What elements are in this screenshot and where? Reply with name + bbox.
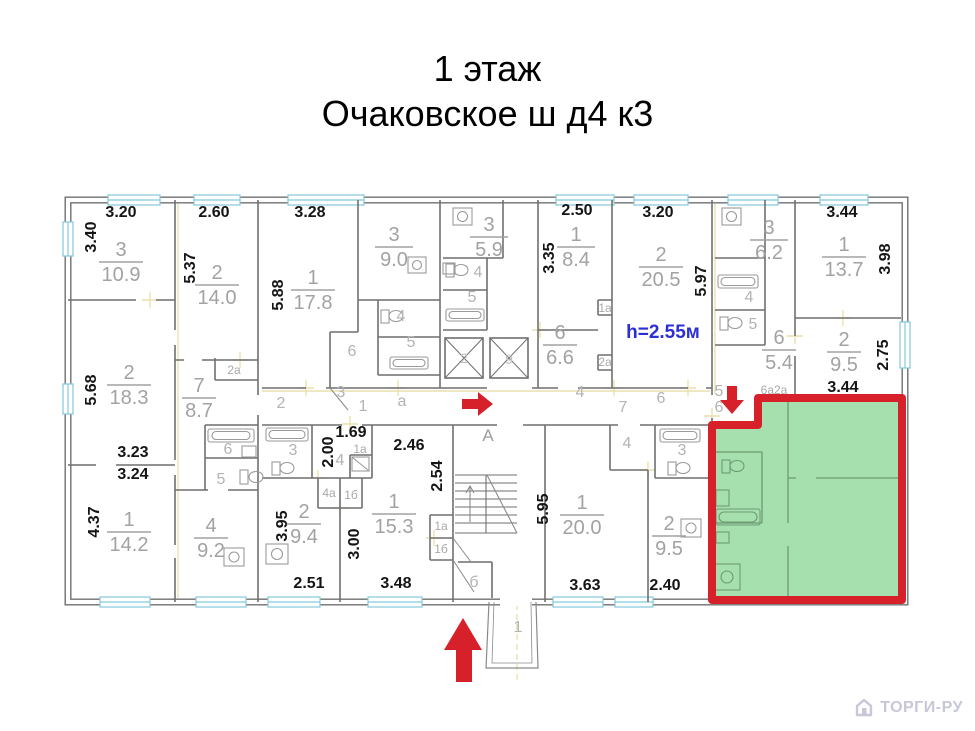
room-area: 20.5: [642, 269, 681, 291]
dim-label: 3.48: [380, 575, 411, 592]
room-label: 114.2: [107, 509, 151, 556]
sub-label: 4: [745, 289, 754, 306]
room-number: 1: [570, 224, 581, 246]
elevator-label: 9: [505, 351, 513, 367]
dim-label: 2.54: [429, 460, 446, 491]
dim-label: 2.40: [649, 577, 680, 594]
toilet: [446, 264, 468, 277]
room-label: 39.0: [375, 224, 413, 271]
sub-label: 1б: [434, 542, 448, 556]
room-label: 78.7: [182, 375, 216, 422]
room-area: 14.2: [110, 534, 149, 556]
corridor-label: 7: [619, 399, 628, 416]
dim-label: 5.88: [270, 279, 287, 310]
room-label: 65.4: [762, 327, 796, 374]
sub-label: 5: [715, 383, 724, 400]
dim-label: 1.69: [335, 424, 366, 441]
bathtub: [446, 309, 484, 321]
sub-label: 1а: [434, 519, 448, 533]
room-label: 115.3: [372, 491, 416, 538]
sub-label: 4: [623, 435, 632, 452]
sink: [242, 446, 256, 457]
corridor-label: 6: [657, 390, 666, 407]
sub-label: 5: [217, 471, 226, 488]
window: [100, 597, 150, 607]
room-area: 10.9: [102, 264, 141, 286]
room-area: 20.0: [563, 517, 602, 539]
sub-label: 3: [289, 442, 298, 459]
dim-label: 3.35: [541, 242, 558, 273]
sub-label: 5: [468, 289, 477, 306]
room-label: 18.4: [557, 224, 595, 271]
dim-label: 3.00: [346, 528, 363, 559]
sub-label: 4а: [322, 486, 336, 500]
room-area: 9.5: [655, 538, 683, 560]
room-number: 1: [838, 234, 849, 256]
bathtub: [390, 357, 428, 369]
dim-label: 3.63: [569, 577, 600, 594]
room-number: 7: [193, 375, 204, 397]
window: [728, 195, 778, 205]
dim-label: 2.50: [561, 202, 592, 219]
dim-label: 3.24: [117, 466, 148, 483]
window: [268, 597, 320, 607]
room-area: 6.6: [546, 347, 574, 369]
elevator-shafts: [445, 338, 528, 378]
dim-label: 5.95: [535, 493, 552, 524]
dim-label: 3.20: [642, 204, 673, 221]
room-label: 220.5: [639, 244, 683, 291]
arrow-right-icon: [462, 392, 493, 416]
room-label: 214.0: [195, 262, 239, 309]
corridor-label: а: [398, 393, 407, 410]
toilet: [272, 462, 294, 475]
room-label: 36.2: [750, 217, 788, 264]
sub-label: 1а: [598, 301, 612, 315]
room-number: 2: [123, 362, 134, 384]
dim-label: 3.40: [83, 221, 100, 252]
window: [368, 597, 422, 607]
washer: [681, 519, 701, 537]
room-number: 1: [576, 492, 587, 514]
stove: [453, 208, 472, 225]
sub-label: 4: [336, 452, 345, 469]
sub-label: 4: [474, 264, 483, 281]
room-label: 113.7: [822, 234, 866, 281]
corridor-label: 1: [359, 398, 368, 415]
dim-label: 2.51: [293, 575, 324, 592]
room-area: 8.4: [562, 249, 590, 271]
sub-label: 4: [397, 308, 406, 325]
sub-label: 5: [407, 334, 416, 351]
dim-label: 3.28: [294, 204, 325, 221]
sub-label: 1б: [344, 488, 358, 502]
room-label: 117.8: [291, 267, 335, 314]
washer: [224, 548, 244, 566]
room-number: 2: [211, 262, 222, 284]
toilet: [668, 462, 690, 475]
room-area: 13.7: [825, 259, 864, 281]
room-number: 3: [115, 239, 126, 261]
stove: [722, 208, 741, 225]
corridor-label: 3: [337, 384, 346, 401]
sub-label: 1а: [353, 442, 367, 456]
toilet: [240, 470, 263, 484]
room-number: 2: [298, 501, 309, 523]
room-area: 15.3: [375, 516, 414, 538]
floor-plan-svg: 3.20 2.60 3.28 2.50 3.20 3.44 3.40 5.37 …: [0, 0, 975, 731]
room-number: 4: [205, 515, 216, 537]
dim-label: 3.23: [117, 444, 148, 461]
dim-label: 3.95: [274, 510, 291, 541]
room-area: 17.8: [294, 292, 333, 314]
dim-label: 2.46: [393, 437, 424, 454]
corridor-label: 4: [576, 384, 585, 401]
staircase: [455, 475, 517, 533]
arrow-down-icon: [720, 386, 744, 414]
window: [63, 222, 73, 256]
dim-label: 2.75: [875, 339, 892, 370]
room-number: 6: [554, 322, 565, 344]
floor-plan-page: 1 этаж Очаковское ш д4 к3: [0, 0, 975, 731]
washer: [266, 544, 288, 564]
room-area: 6.2: [755, 242, 783, 264]
room-label: 66.6: [543, 322, 577, 369]
room-area: 5.4: [765, 352, 793, 374]
watermark: ТОРГИ-РУ: [853, 697, 963, 719]
room-area: 8.7: [185, 400, 213, 422]
sub-label: 6: [224, 441, 233, 458]
entrance-label: 1: [514, 619, 523, 636]
entrance-vestibule: [486, 602, 538, 668]
watermark-text: ТОРГИ-РУ: [880, 699, 963, 717]
room-number: 1: [123, 509, 134, 531]
dim-label: 3.98: [877, 243, 894, 274]
dim-label: 5.97: [693, 265, 710, 296]
dim-label: 4.37: [86, 506, 103, 537]
room-label: 49.2: [194, 515, 228, 562]
sub-label: 5: [749, 316, 758, 333]
dim-label: 3.44: [827, 379, 858, 396]
bathtub: [660, 429, 700, 442]
torgi-logo-icon: [853, 697, 875, 719]
sub-label: 6а2а: [761, 383, 788, 397]
dim-label: 5.68: [83, 374, 100, 405]
room-number: 6: [773, 327, 784, 349]
room-number: 3: [388, 224, 399, 246]
room-number: 3: [483, 214, 494, 236]
toilet: [720, 317, 742, 330]
room-label: 29.5: [827, 329, 861, 376]
room-label: 29.4: [287, 501, 321, 548]
window: [553, 597, 603, 607]
sub-label: 2а: [598, 355, 612, 369]
room-number: 2: [838, 329, 849, 351]
sink: [443, 263, 455, 274]
room-area: 5.9: [475, 239, 503, 261]
room-number: 2: [655, 244, 666, 266]
sub-label: 2а: [227, 363, 241, 377]
bathtub: [266, 428, 308, 441]
corridor-label: 2: [277, 395, 286, 412]
room-area: 9.4: [290, 526, 318, 548]
sub-label: 6: [348, 343, 357, 360]
dim-label: 3.44: [826, 204, 857, 221]
elevator-label: 2: [460, 350, 468, 366]
dim-label: 2.60: [198, 204, 229, 221]
basement-label: б: [469, 574, 478, 591]
sub-label: 3: [678, 442, 687, 459]
room-area: 14.0: [198, 287, 237, 309]
closet-icon: [352, 457, 369, 471]
room-area: 18.3: [110, 387, 149, 409]
ceiling-height-note: h=2.55м: [626, 322, 700, 343]
dim-label: 3.20: [105, 204, 136, 221]
sub-label: 6: [715, 399, 724, 416]
room-number: 1: [388, 491, 399, 513]
room-label: 218.3: [107, 362, 151, 409]
room-area: 9.5: [830, 354, 858, 376]
bathtub: [718, 275, 758, 288]
room-area: 9.2: [197, 540, 225, 562]
dim-label: 5.37: [182, 252, 199, 283]
entrance-door-gap: [500, 596, 532, 606]
window: [196, 597, 246, 607]
arrow-up-icon: [444, 618, 482, 682]
highlighted-apartment: [712, 398, 902, 600]
room-number: 1: [307, 267, 318, 289]
dim-label: 2.00: [320, 436, 337, 467]
stove: [408, 257, 426, 273]
room-area: 9.0: [380, 249, 408, 271]
room-label: 120.0: [560, 492, 604, 539]
room-number: 2: [663, 513, 674, 535]
window: [63, 384, 73, 414]
room-number: 3: [763, 217, 774, 239]
window: [900, 322, 910, 368]
room-label: 310.9: [99, 239, 143, 286]
stairwell-letter: А: [482, 426, 494, 445]
